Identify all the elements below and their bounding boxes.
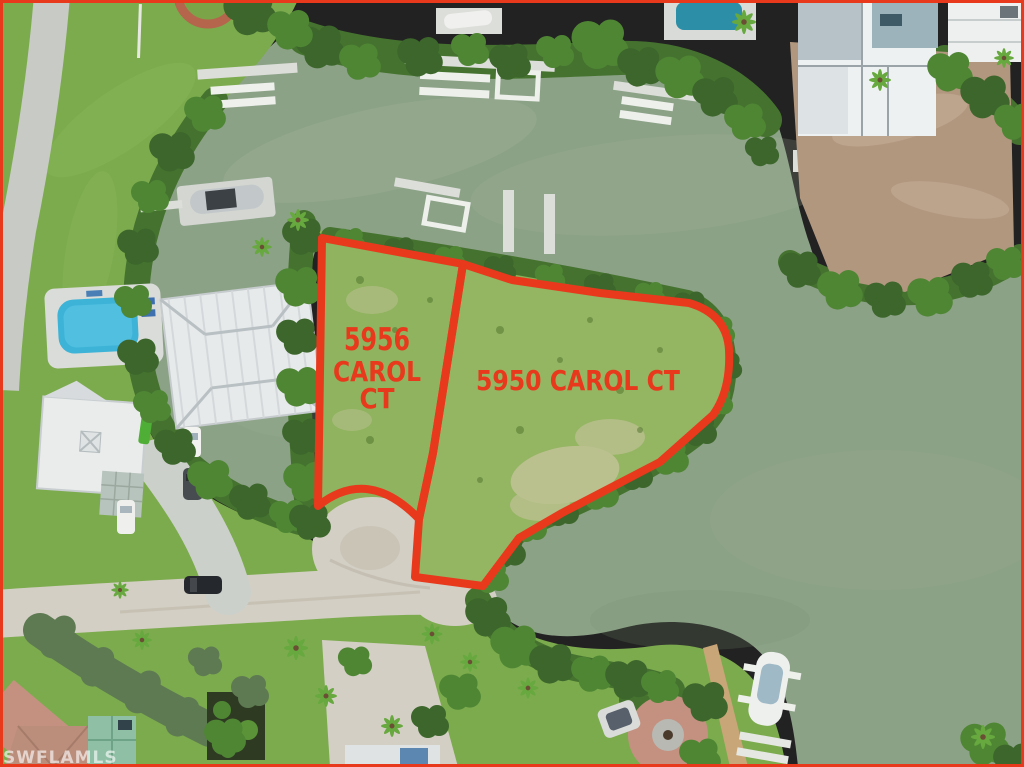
lot-5950-label: 5950 CAROL CT	[476, 364, 680, 397]
lounge-chair	[86, 290, 102, 297]
lot-5956-label-line3: CT	[360, 382, 395, 415]
aerial-photo: 5956 CAROL CT 5950 CAROL CT SWFLAMLS	[0, 0, 1024, 767]
aerial-scene: 5956 CAROL CT 5950 CAROL CT SWFLAMLS	[0, 0, 1024, 767]
van	[117, 500, 135, 534]
suv-on-road	[184, 576, 222, 594]
mls-watermark: SWFLAMLS	[3, 748, 118, 767]
pier	[503, 190, 514, 252]
lot-5956-label-line1: 5956	[344, 322, 410, 358]
bottom-center-house	[345, 745, 440, 767]
pier	[544, 194, 555, 254]
construction-house	[798, 0, 938, 136]
boat-canopy	[205, 188, 237, 210]
top-dock	[436, 8, 502, 34]
